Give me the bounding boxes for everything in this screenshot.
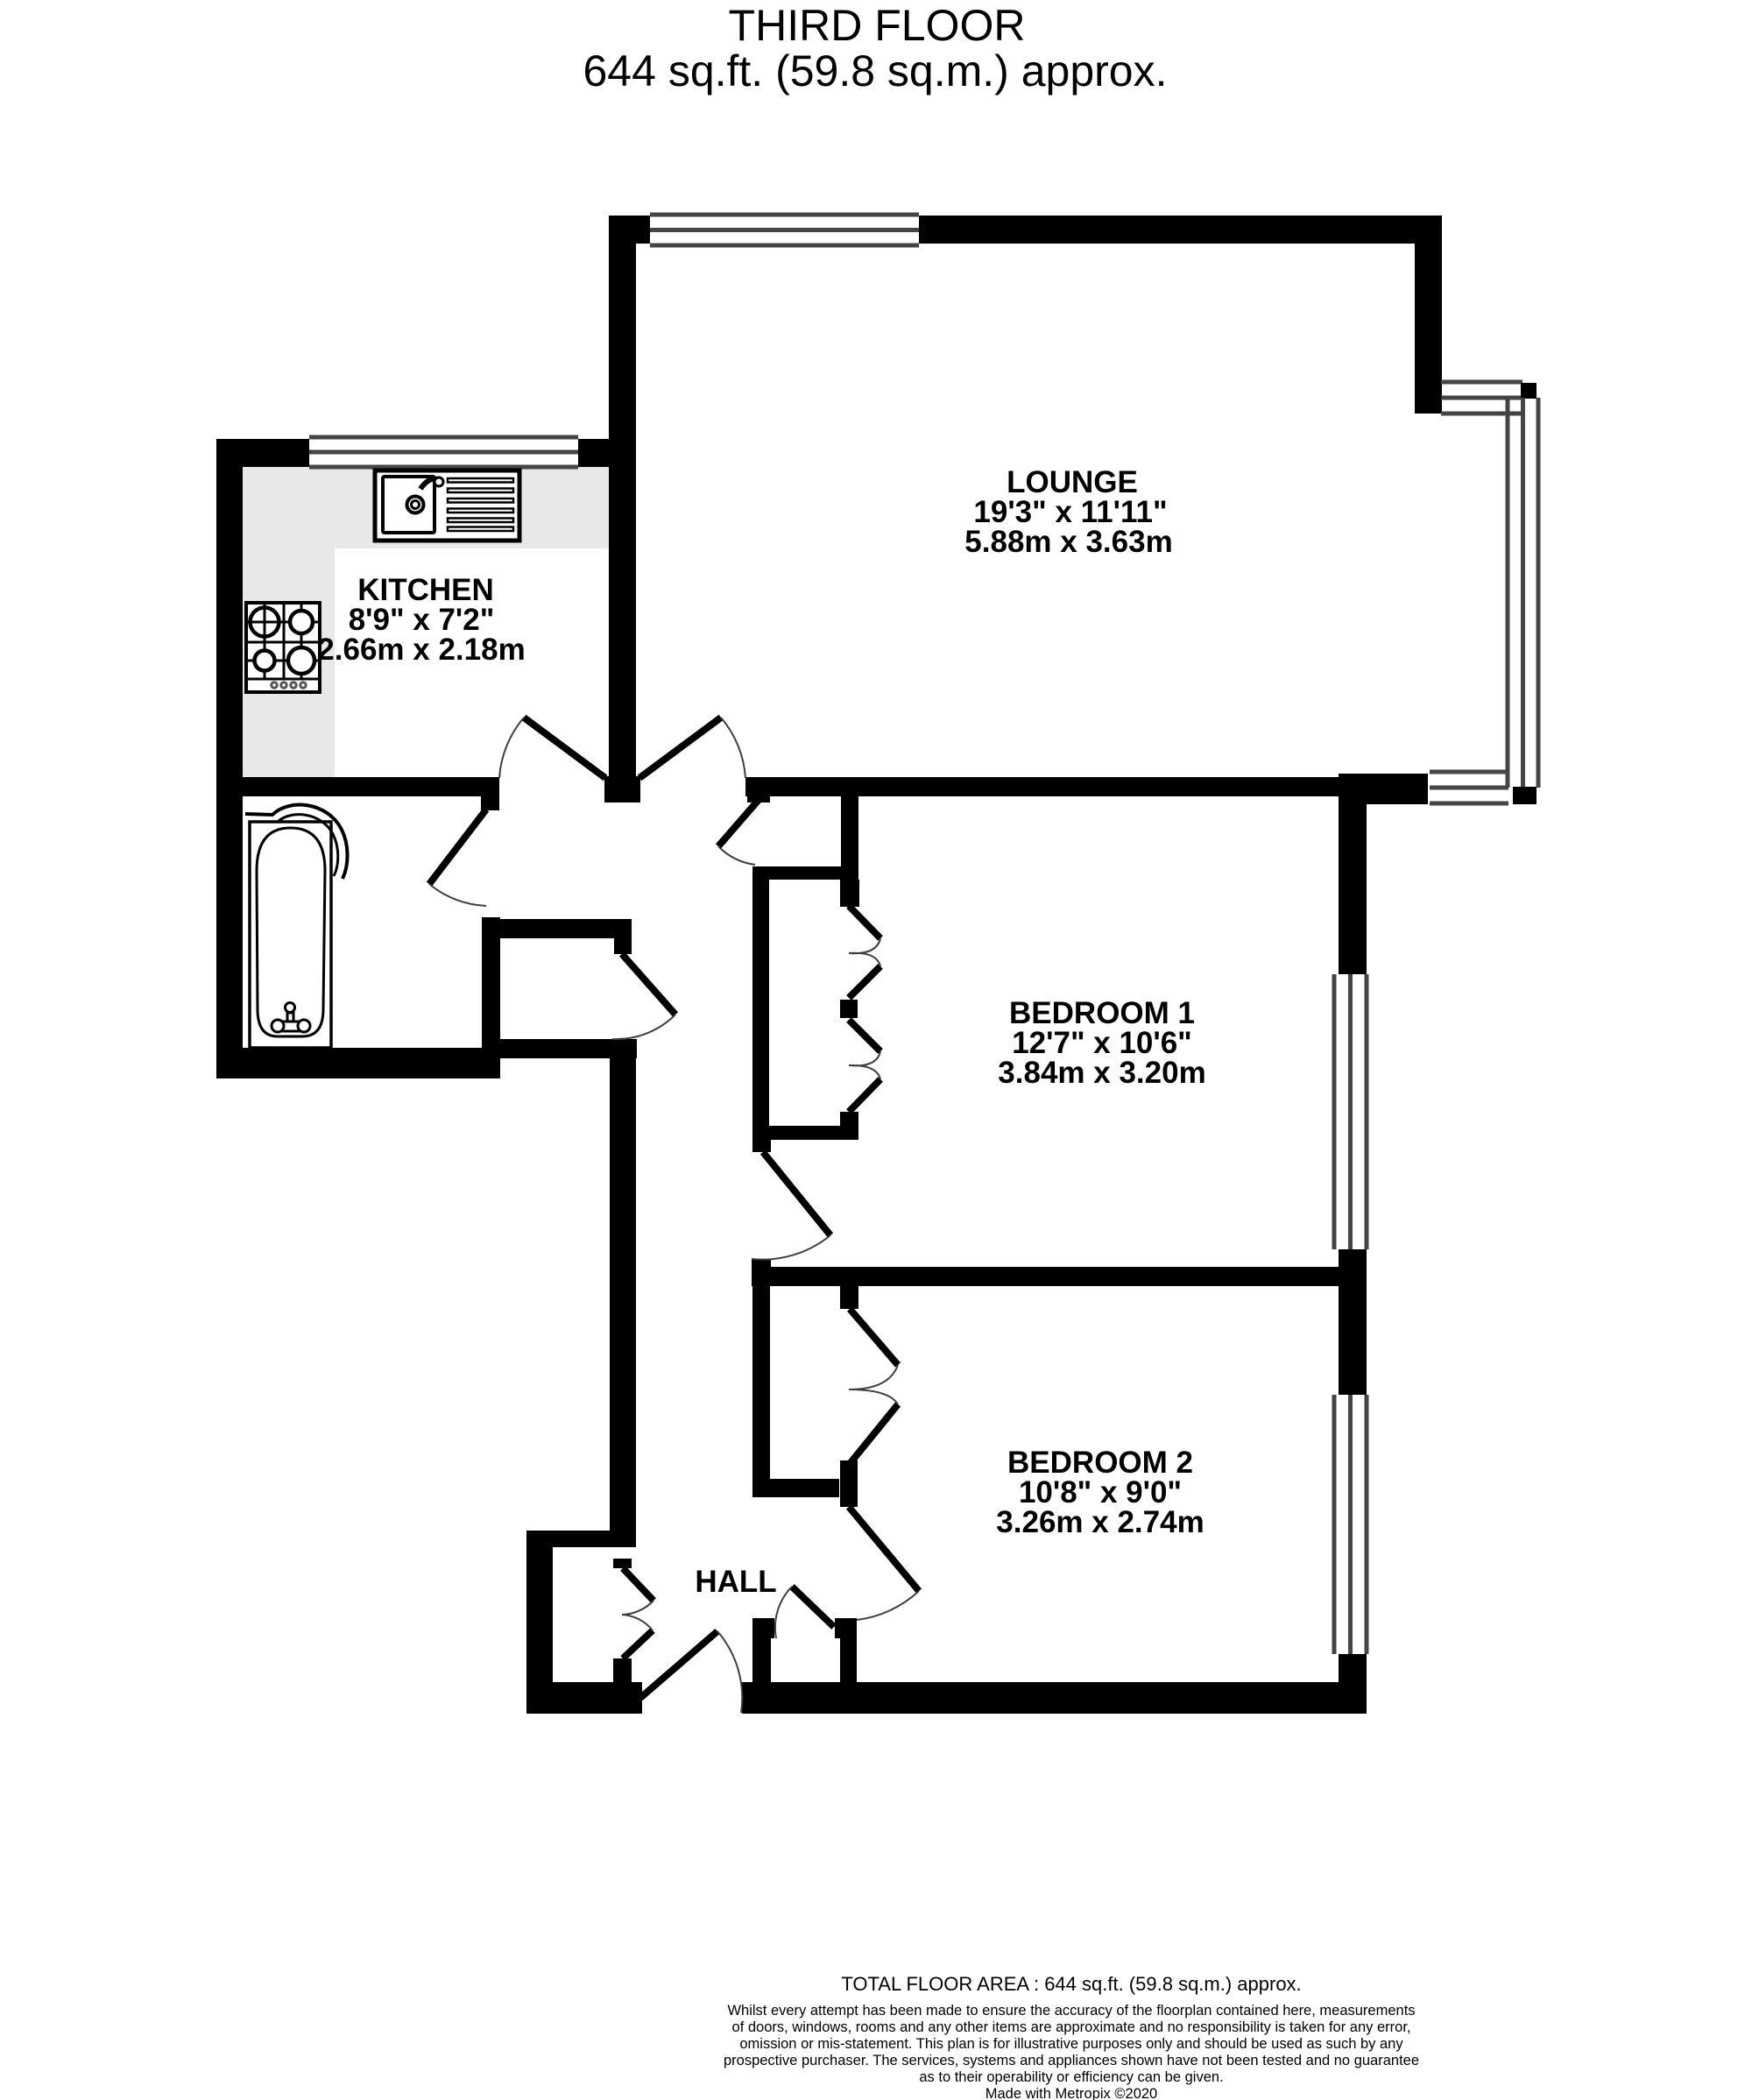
svg-text:as to their operability or eff: as to their operability or efficiency ca… (919, 2069, 1223, 2085)
svg-text:HALL: HALL (695, 1565, 776, 1599)
svg-text:THIRD FLOOR: THIRD FLOOR (729, 1, 1026, 50)
svg-text:prospective purchaser. The ser: prospective purchaser. The services, sys… (724, 2053, 1419, 2068)
svg-text:Made with Metropix ©2020: Made with Metropix ©2020 (985, 2086, 1158, 2100)
svg-text:3.84m x 3.20m: 3.84m x 3.20m (998, 1056, 1205, 1090)
svg-text:TOTAL FLOOR AREA : 644 sq.ft.: TOTAL FLOOR AREA : 644 sq.ft. (59.8 sq.m… (841, 1973, 1301, 1995)
svg-text:644 sq.ft. (59.8 sq.m.) approx: 644 sq.ft. (59.8 sq.m.) approx. (583, 46, 1168, 95)
svg-text:2.66m x 2.18m: 2.66m x 2.18m (317, 633, 525, 667)
svg-text:Whilst every attempt has been: Whilst every attempt has been made to en… (727, 2003, 1415, 2019)
svg-text:omission or mis-statement. Thi: omission or mis-statement. This plan is … (739, 2036, 1403, 2052)
svg-text:5.88m x 3.63m: 5.88m x 3.63m (964, 525, 1172, 559)
svg-text:3.26m x 2.74m: 3.26m x 2.74m (996, 1505, 1204, 1539)
svg-text:of doors, windows, rooms and a: of doors, windows, rooms and any other i… (732, 2019, 1411, 2035)
